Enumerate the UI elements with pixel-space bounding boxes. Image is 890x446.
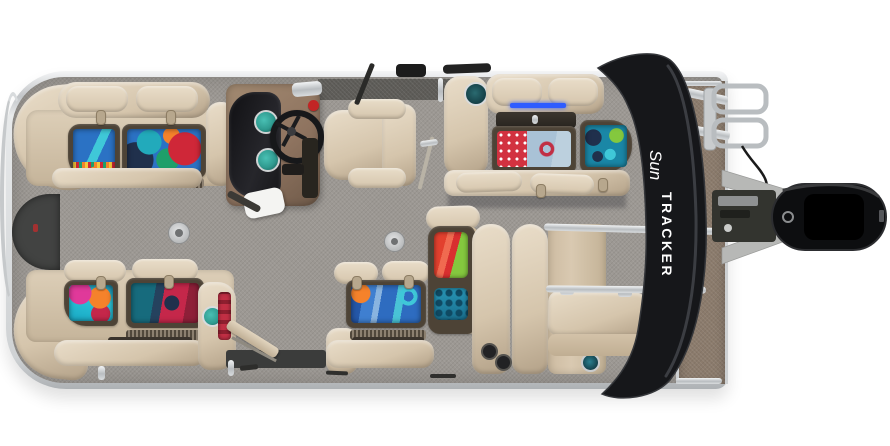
seat-strap: [166, 110, 176, 125]
storage-console-bin-bottom: [434, 288, 468, 320]
boarding-ladder-step: [714, 120, 766, 146]
captains-chair-armrest: [348, 168, 406, 188]
port-side-wall: [318, 79, 450, 100]
mid-bench-seat: [326, 340, 434, 368]
boat-overhead-photo: Sun TRACKER: [0, 0, 890, 446]
starboard-lounge-backrest-pad: [492, 78, 542, 106]
bimini-boot-shape: [598, 54, 706, 398]
helm-mirror: [291, 81, 322, 98]
aft-port-storage-bin-left-contents: [69, 285, 113, 321]
led-accent-strip: [510, 103, 566, 108]
ski-tow-fitting: [168, 222, 190, 244]
motor-mount-bolt: [724, 224, 732, 232]
outboard-motor-window: [804, 194, 864, 240]
l-bench-cushion: [512, 224, 548, 374]
deck-fitting: [384, 231, 405, 252]
storage-console-bin-top: [434, 232, 468, 278]
stern-assembly: [698, 78, 890, 298]
starboard-storage-bin-large: [492, 126, 576, 172]
port-storage-bin-right-contents: [127, 129, 201, 173]
port-lounge-seat-front: [52, 168, 202, 188]
rail-post: [98, 366, 105, 380]
helm-side-panel: [302, 138, 318, 198]
aft-port-lounge-seat: [54, 340, 206, 366]
rail-post: [438, 78, 443, 102]
seat-strap: [164, 275, 174, 289]
armrest-strap-slot: [218, 292, 231, 340]
deck-fitting-center: [391, 238, 398, 245]
seat-strap: [536, 184, 546, 198]
rail-fitting: [326, 371, 348, 376]
cup-holder: [495, 354, 512, 371]
motor-mount-bracket: [718, 196, 758, 206]
speaker: [464, 82, 488, 106]
polka-dot-fabric: [497, 131, 527, 167]
rail-fitting: [430, 374, 456, 378]
port-lounge-backrest-pad: [66, 86, 128, 112]
brand-logo-script: Sun: [646, 150, 665, 180]
ski-tow-fitting-center: [175, 229, 183, 237]
aft-port-backrest-pad: [64, 260, 126, 282]
blue-fabric: [527, 131, 571, 167]
motor-mount-plate: [720, 210, 750, 218]
steering-wheel-hub: [287, 127, 296, 136]
port-lounge-backrest-pad: [136, 86, 198, 112]
seat-strap: [96, 110, 106, 125]
starboard-storage-bin-large-contents: [497, 131, 571, 167]
seat-strap: [96, 276, 106, 290]
starboard-lounge-seat-pad: [456, 171, 523, 193]
seat-strap: [404, 275, 414, 289]
kill-switch: [308, 100, 319, 111]
aft-port-storage-bin-left: [64, 280, 118, 326]
boarding-ladder-step: [714, 86, 766, 112]
brand-logo-block: TRACKER: [659, 192, 675, 278]
rail-clip: [443, 63, 491, 74]
rail-clip: [396, 64, 426, 77]
bow-gate-latch: [33, 224, 38, 232]
outboard-motor-tag: [879, 210, 884, 222]
rail-post: [228, 360, 234, 376]
mid-bench-storage-bin-contents: [351, 285, 421, 323]
seat-strap: [352, 276, 362, 290]
aft-port-storage-bin-right-contents: [131, 283, 199, 323]
helm-footrest-slot: [282, 164, 304, 175]
storage-lid-latch: [532, 115, 538, 124]
